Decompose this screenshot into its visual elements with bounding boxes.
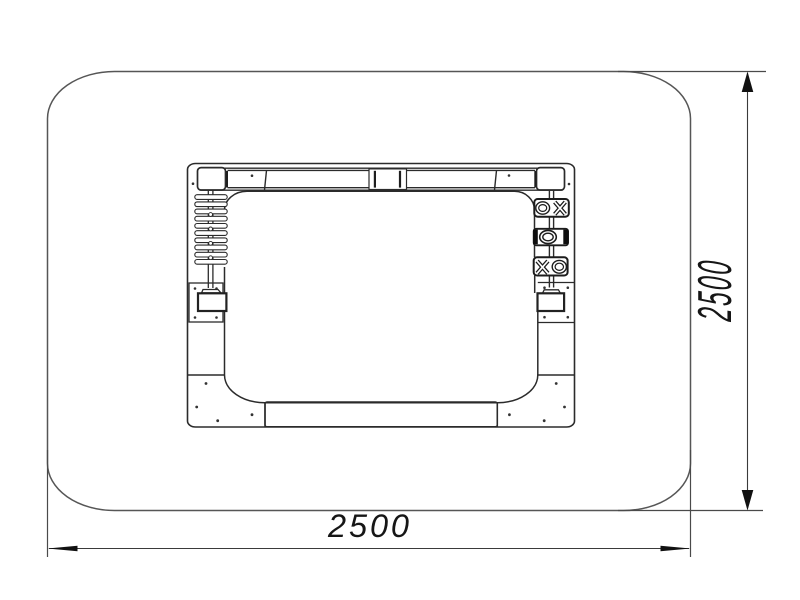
svg-text:2500: 2500	[689, 259, 742, 323]
